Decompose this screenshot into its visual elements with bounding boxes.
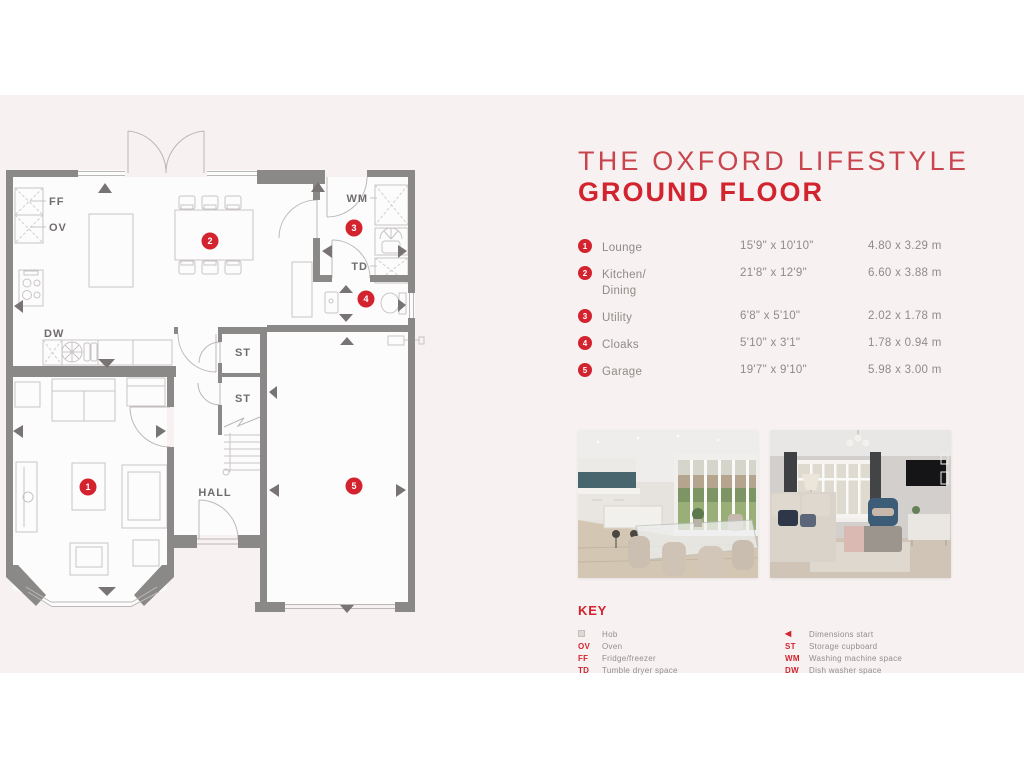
- room-marker-utility: 3: [346, 220, 363, 237]
- label-ov: OV: [49, 222, 67, 234]
- room-imperial: 19'7" x 9'10": [740, 364, 868, 376]
- room-name: Garage: [602, 364, 740, 380]
- svg-text:4: 4: [363, 294, 368, 304]
- room-marker-garage: 5: [346, 478, 363, 495]
- room-number-badge: 4: [578, 336, 592, 350]
- room-number-badge: 2: [578, 266, 592, 280]
- room-metric: 2.02 x 1.78 m: [868, 310, 942, 322]
- room-number-badge: 1: [578, 239, 592, 253]
- table-row: 2 Kitchen/Dining 21'8" x 12'9" 6.60 x 3.…: [578, 267, 958, 299]
- key-item-dish-washer: DW Dish washer space: [785, 664, 902, 676]
- key-item-hob: Hob: [578, 628, 678, 640]
- room-number-badge: 5: [578, 363, 592, 377]
- key-item-dimensions-start: ◀ Dimensions start: [785, 628, 902, 640]
- svg-text:5: 5: [351, 481, 356, 491]
- hob-icon: [578, 630, 585, 637]
- key-item-storage-cupboard: ST Storage cupboard: [785, 640, 902, 652]
- room-marker-kitchen-dining: 2: [202, 233, 219, 250]
- room-name: Utility: [602, 310, 740, 326]
- title-line1: THE OXFORD LIFESTYLE: [578, 146, 969, 177]
- room-dimension-table: 1 Lounge 15'9" x 10'10" 4.80 x 3.29 m 2 …: [578, 240, 958, 392]
- label-st2: ST: [235, 393, 251, 405]
- key-item-tumble-dryer: TD Tumble dryer space: [578, 664, 678, 676]
- svg-text:2: 2: [207, 236, 212, 246]
- dimension-arrow-icon: ◀: [785, 630, 809, 638]
- table-row: 5 Garage 19'7" x 9'10" 5.98 x 3.00 m: [578, 364, 958, 380]
- label-td: TD: [351, 261, 368, 273]
- title-line2: GROUND FLOOR: [578, 177, 969, 208]
- room-marker-cloaks: 4: [358, 291, 375, 308]
- page-title: THE OXFORD LIFESTYLE GROUND FLOOR: [578, 146, 969, 208]
- label-wm: WM: [346, 193, 368, 205]
- table-row: 1 Lounge 15'9" x 10'10" 4.80 x 3.29 m: [578, 240, 958, 256]
- key-title: KEY: [578, 603, 978, 618]
- kitchen-dining-photo: [578, 430, 758, 578]
- room-marker-lounge: 1: [80, 479, 97, 496]
- room-metric: 5.98 x 3.00 m: [868, 364, 942, 376]
- key-column-right: ◀ Dimensions start ST Storage cupboard W…: [785, 628, 902, 676]
- room-number-badge: 3: [578, 309, 592, 323]
- room-metric: 4.80 x 3.29 m: [868, 240, 942, 252]
- label-dw: DW: [44, 328, 64, 340]
- room-name: Kitchen/Dining: [602, 267, 740, 299]
- svg-text:3: 3: [351, 223, 356, 233]
- key-item-fridge-freezer: FF Fridge/freezer: [578, 652, 678, 664]
- label-st1: ST: [235, 347, 251, 359]
- room-imperial: 21'8" x 12'9": [740, 267, 868, 279]
- table-row: 3 Utility 6'8" x 5'10" 2.02 x 1.78 m: [578, 310, 958, 326]
- svg-text:1: 1: [85, 482, 90, 492]
- key-item-washing-machine: WM Washing machine space: [785, 652, 902, 664]
- lounge-photo: [770, 430, 951, 578]
- room-imperial: 5'10" x 3'1": [740, 337, 868, 349]
- room-name: Cloaks: [602, 337, 740, 353]
- key-legend: KEY Hob OV Oven FF Fridge/freezer TD Tum…: [578, 603, 978, 628]
- key-item-oven: OV Oven: [578, 640, 678, 652]
- room-metric: 1.78 x 0.94 m: [868, 337, 942, 349]
- room-name: Lounge: [602, 240, 740, 256]
- room-metric: 6.60 x 3.88 m: [868, 267, 942, 279]
- brochure-page: FF OV DW WM TD ST ST HALL 1 2 3 4 5 THE …: [0, 0, 1024, 768]
- floor-plan: FF OV DW WM TD ST ST HALL 1 2 3 4 5: [0, 115, 450, 675]
- room-imperial: 15'9" x 10'10": [740, 240, 868, 252]
- key-column-left: Hob OV Oven FF Fridge/freezer TD Tumble …: [578, 628, 678, 676]
- table-row: 4 Cloaks 5'10" x 3'1" 1.78 x 0.94 m: [578, 337, 958, 353]
- label-hall: HALL: [198, 487, 231, 499]
- room-imperial: 6'8" x 5'10": [740, 310, 868, 322]
- label-ff: FF: [49, 196, 64, 208]
